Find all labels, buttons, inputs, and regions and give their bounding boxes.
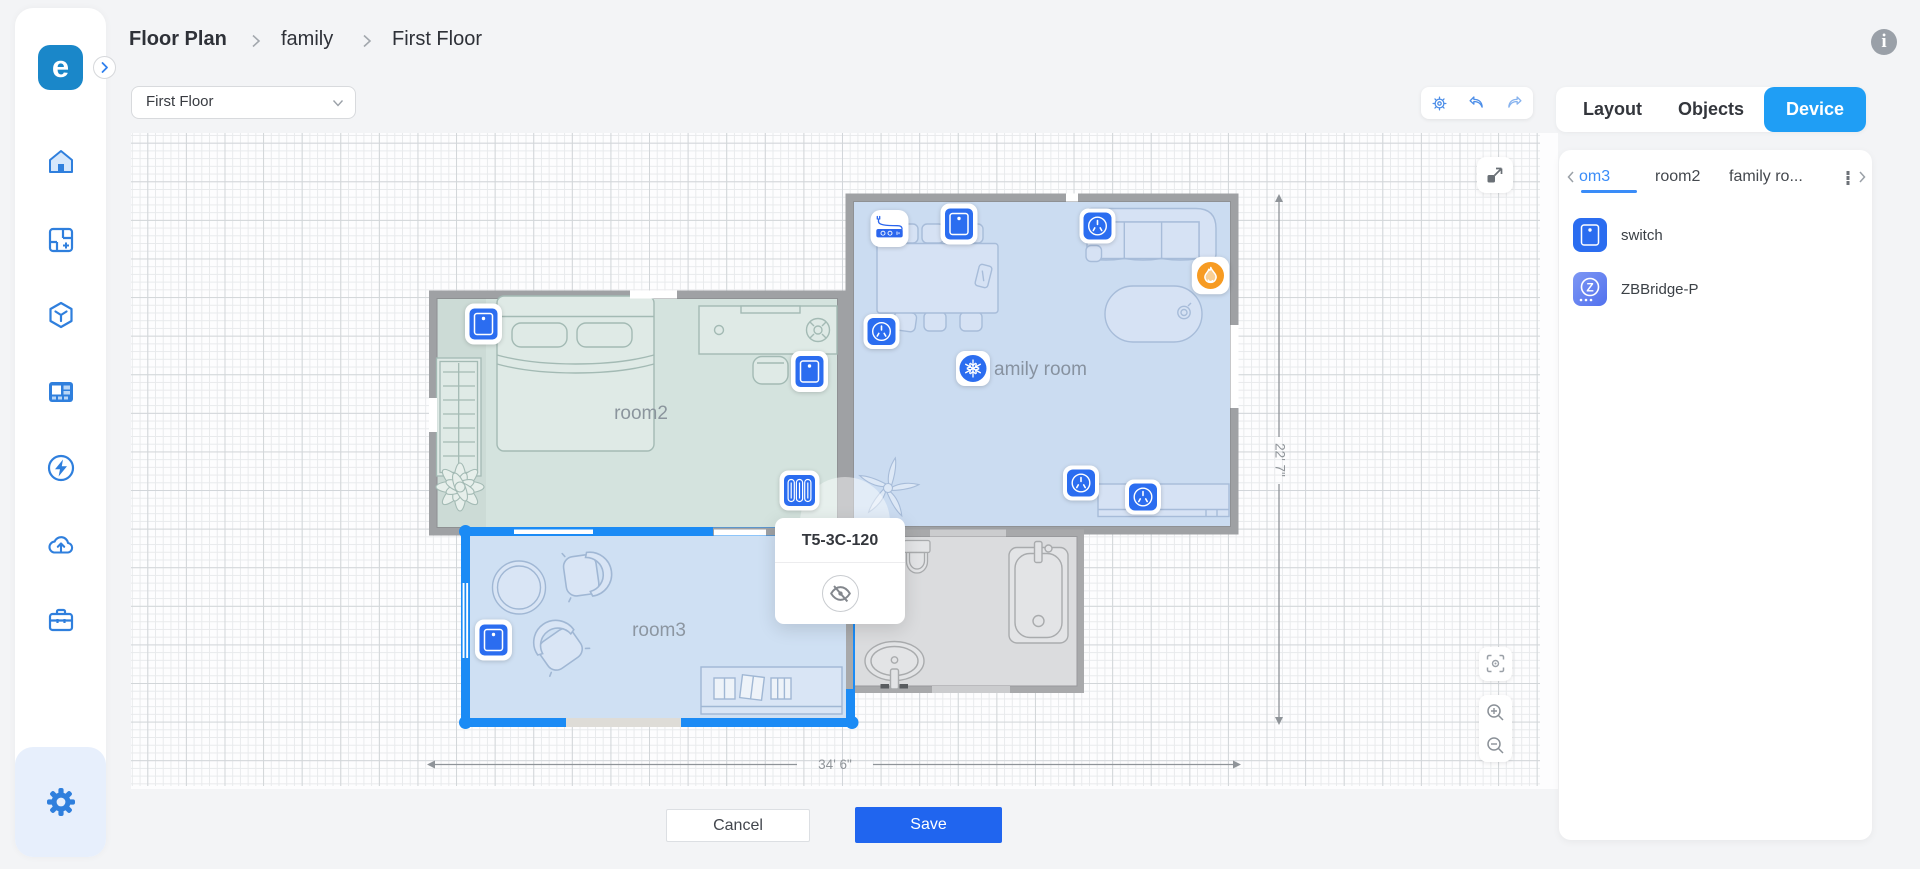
svg-text:Z: Z <box>1586 281 1593 295</box>
